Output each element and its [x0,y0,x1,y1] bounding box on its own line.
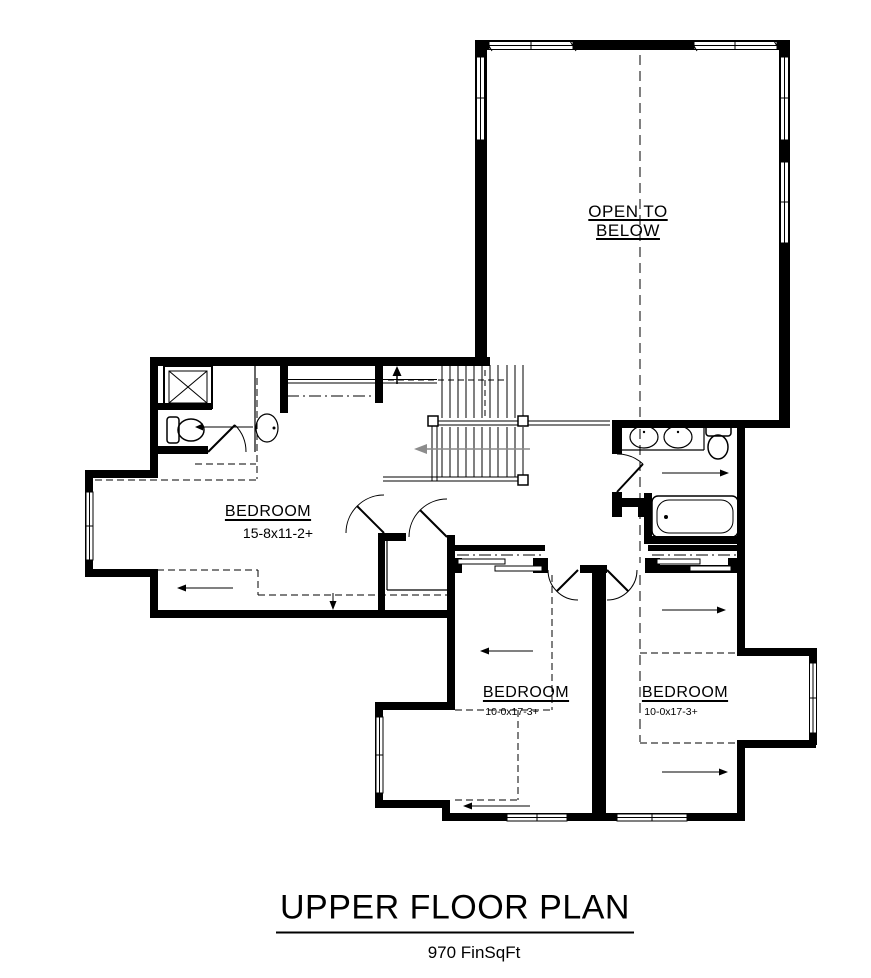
bath-slope-arrow [662,470,729,477]
hall-closet-walls [387,541,450,590]
plan-title: UPPER FLOOR PLAN [276,889,634,934]
stair-up-arrow [393,366,402,384]
open-to-below-line1: OPEN TO [588,202,667,221]
bathtub-icon [652,496,738,537]
stair-direction-arrow [414,444,530,454]
arrow-br-lower [662,769,728,776]
arrow-bl-lower [463,803,530,810]
shower-icon [164,366,212,408]
door-swing-hall-closet [409,499,447,537]
master-bedroom-label: BEDROOM [225,503,311,521]
door-swing-master-bath [208,425,246,452]
arrow-master-down [330,593,337,610]
bedroom-left-label: BEDROOM [483,684,569,702]
toilet-icon [706,424,731,459]
door-swing-master-bedroom [346,495,384,533]
floor-plan-drawing [0,0,871,978]
stair-newel-posts [428,416,528,485]
stair-treads-lower [442,427,523,477]
closet-bedroom-left [457,555,543,571]
vanity-sink-icon [255,366,278,452]
floor-plan-page: OPEN TO BELOW BEDROOM 15-8x11-2+ BEDROOM… [0,0,871,978]
bedroom-right-dims: 10-0x17-3+ [644,706,697,718]
double-vanity-icon [622,426,704,450]
toilet-icon [167,417,204,443]
arrow-br-upper [662,607,726,614]
plan-subtitle: 970 FinSqFt [428,943,521,963]
door-swing-hall-bath [617,454,643,492]
master-closet [287,380,437,397]
bedroom-right-label: BEDROOM [642,684,728,702]
open-to-below-line2: BELOW [588,221,667,240]
open-to-below-label: OPEN TO BELOW [588,202,667,240]
stair-break-lines [388,370,505,417]
door-swing-bedroom-right [607,570,637,600]
arrow-master-left [177,585,233,592]
arrow-bl-upper [480,648,533,655]
stair-treads-upper [442,365,523,418]
exterior-walls [85,40,817,821]
master-bedroom-dims: 15-8x11-2+ [243,525,313,541]
bedroom-left-dims: 10-0x17-3+ [485,706,538,718]
door-swing-bedroom-left [548,570,578,600]
